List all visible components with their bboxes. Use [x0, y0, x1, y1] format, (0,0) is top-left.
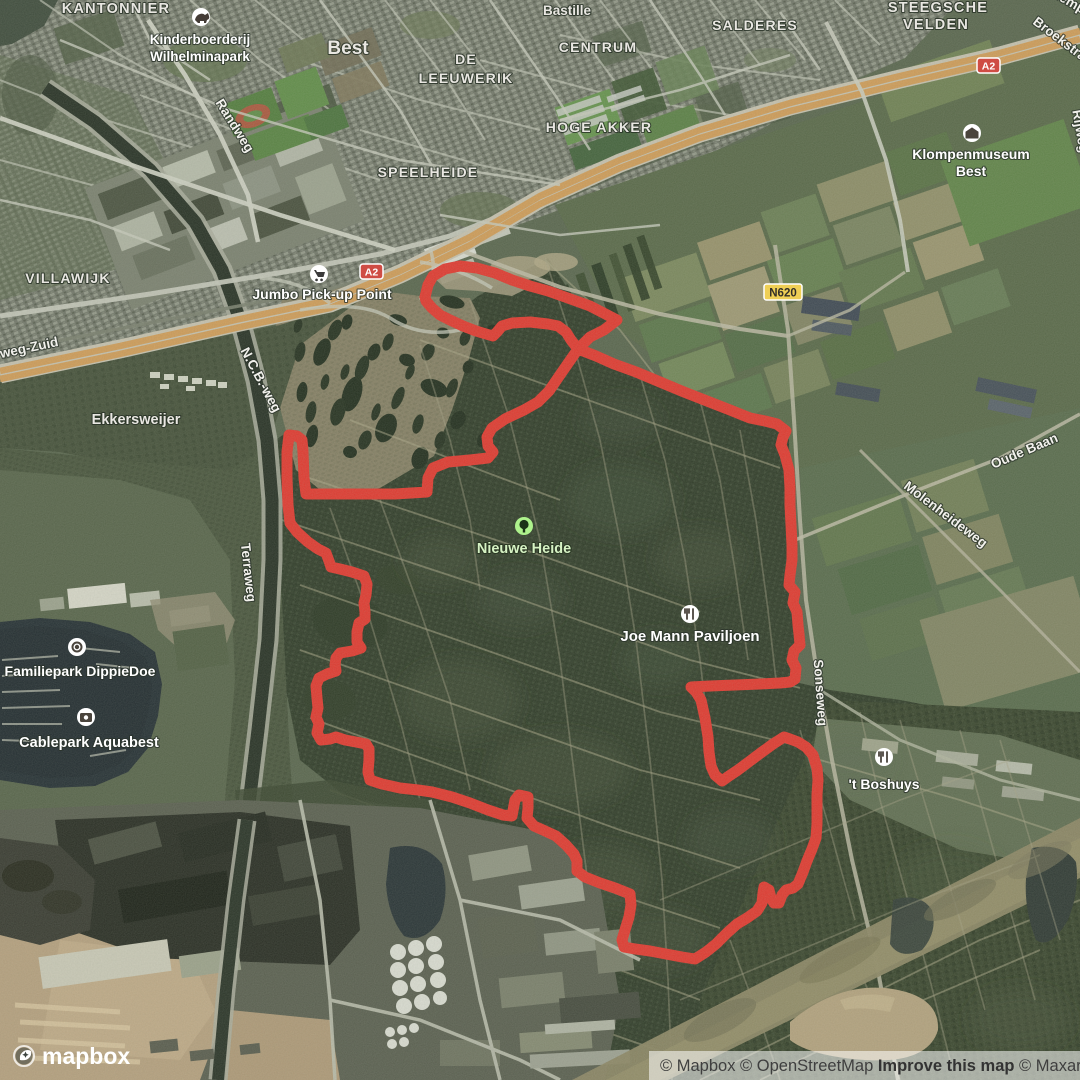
- svg-text:KANTONNIER: KANTONNIER: [62, 1, 170, 17]
- svg-text:N620: N620: [769, 288, 797, 300]
- svg-text:Best: Best: [956, 163, 987, 179]
- svg-text:Familiepark DippieDoe: Familiepark DippieDoe: [5, 663, 156, 679]
- svg-text:Jumbo Pick-up Point: Jumbo Pick-up Point: [252, 286, 392, 302]
- svg-text:Ekkersweijer: Ekkersweijer: [92, 412, 181, 428]
- svg-text:STEEGSCHE: STEEGSCHE: [888, 0, 988, 16]
- svg-text:HOGE AKKER: HOGE AKKER: [546, 119, 652, 135]
- svg-text:Kinderboerderij: Kinderboerderij: [150, 32, 251, 47]
- svg-text:Best: Best: [327, 38, 369, 59]
- svg-text:Bastille: Bastille: [543, 3, 592, 18]
- svg-text:Joe Mann Paviljoen: Joe Mann Paviljoen: [620, 628, 759, 645]
- svg-text:CENTRUM: CENTRUM: [559, 39, 637, 55]
- svg-text:DE: DE: [455, 51, 477, 67]
- svg-text:'t Boshuys: 't Boshuys: [848, 776, 919, 792]
- svg-text:Wilhelminapark: Wilhelminapark: [150, 49, 250, 64]
- svg-text:SPEELHEIDE: SPEELHEIDE: [378, 164, 479, 180]
- svg-text:SALDERES: SALDERES: [712, 17, 798, 33]
- svg-text:LEEUWERIK: LEEUWERIK: [419, 70, 514, 86]
- svg-text:Klompenmuseum: Klompenmuseum: [912, 146, 1029, 162]
- svg-text:A2: A2: [982, 61, 996, 73]
- svg-text:mapbox: mapbox: [42, 1043, 130, 1069]
- svg-text:Nieuwe Heide: Nieuwe Heide: [477, 541, 571, 557]
- svg-text:VILLAWIJK: VILLAWIJK: [25, 270, 110, 286]
- svg-text:A2: A2: [365, 267, 379, 279]
- svg-text:© Mapbox © OpenStreetMap Impro: © Mapbox © OpenStreetMap Improve this ma…: [660, 1057, 1080, 1075]
- svg-text:VELDEN: VELDEN: [903, 17, 969, 33]
- svg-text:Cablepark Aquabest: Cablepark Aquabest: [19, 735, 159, 751]
